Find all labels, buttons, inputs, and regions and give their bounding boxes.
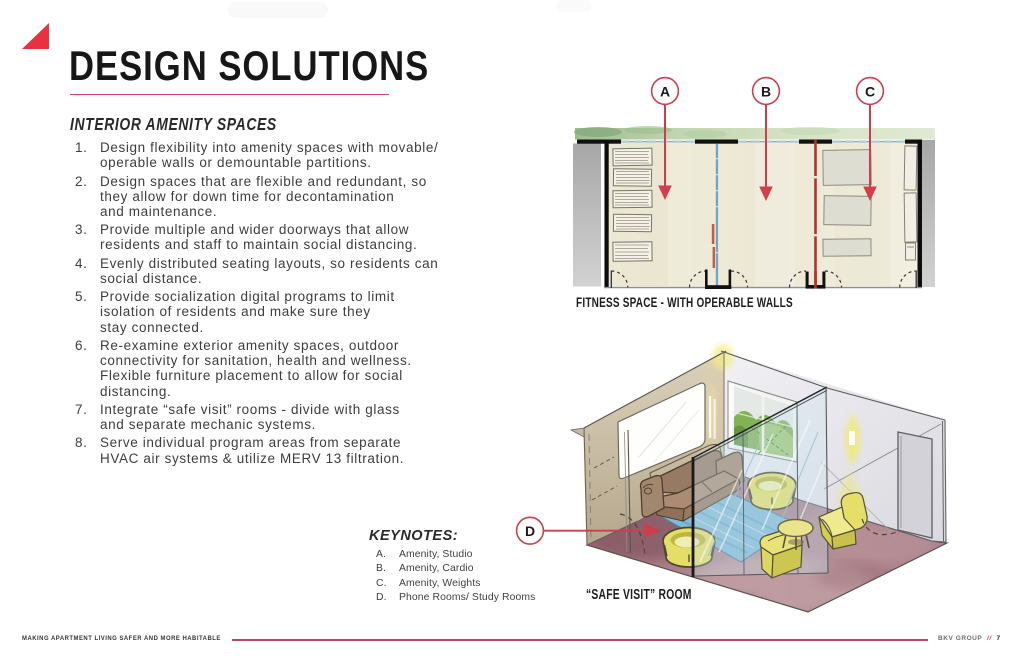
svg-text:B: B [761, 83, 771, 99]
svg-text:D: D [525, 523, 535, 539]
svg-text:A: A [660, 83, 670, 99]
svg-text:C: C [865, 83, 875, 99]
